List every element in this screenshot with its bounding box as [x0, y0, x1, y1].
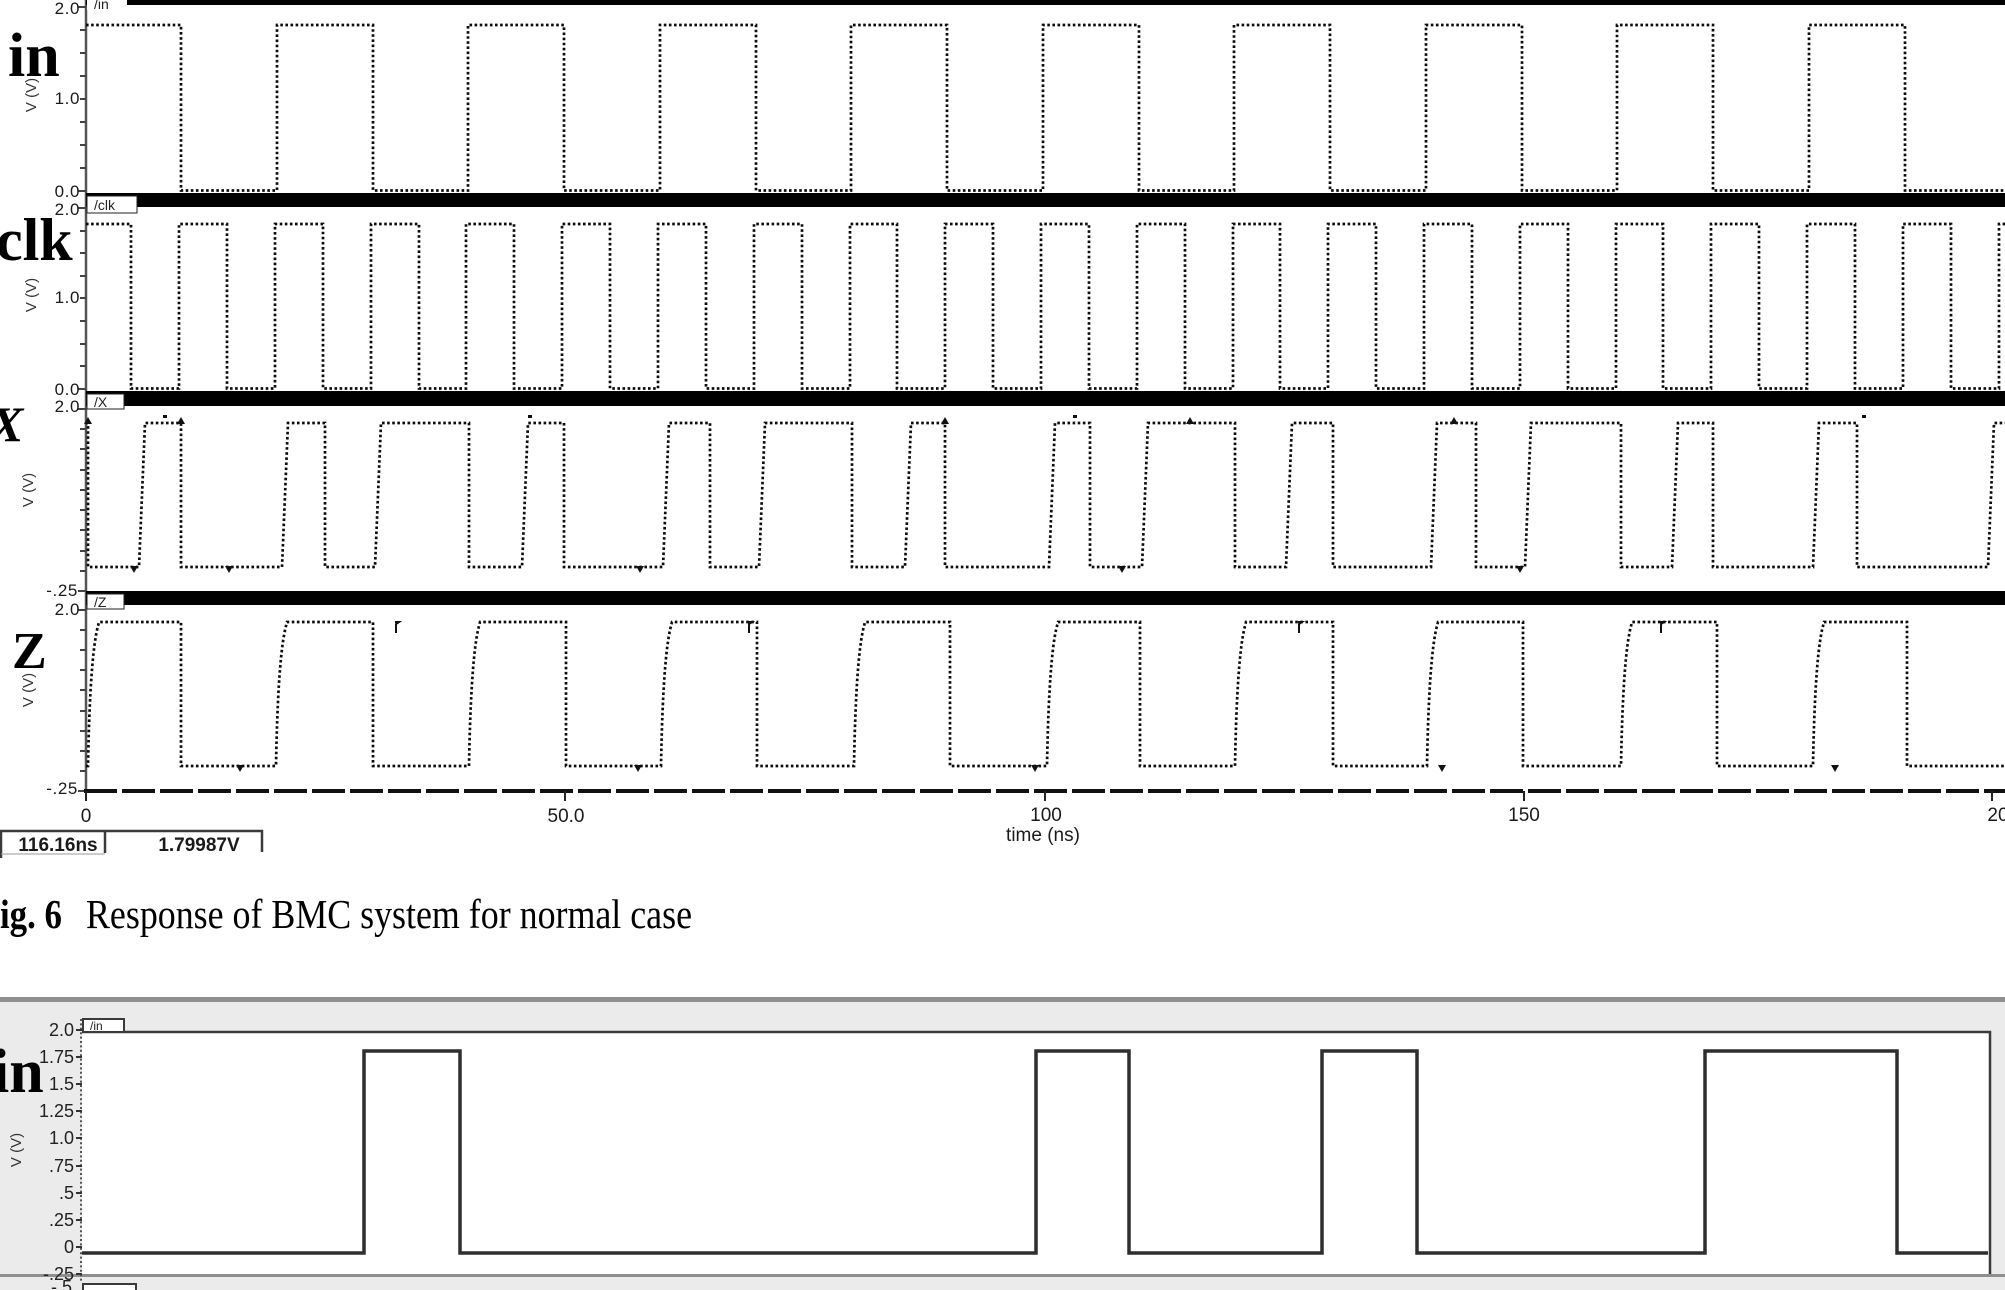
svg-text:150: 150: [1508, 805, 1540, 826]
svg-text:/Z: /Z: [94, 594, 107, 610]
svg-text:1.79987V: 1.79987V: [158, 835, 240, 856]
svg-text:/clk: /clk: [94, 197, 116, 213]
svg-text:X: X: [0, 396, 25, 452]
svg-text:clk: clk: [0, 207, 73, 273]
svg-text:V (V): V (V): [8, 1133, 25, 1167]
svg-text:/in: /in: [94, 0, 109, 12]
svg-text:50.0: 50.0: [548, 806, 585, 827]
svg-text:-.25: -.25: [46, 779, 78, 798]
svg-text:1.0: 1.0: [55, 288, 80, 307]
svg-text:1.75: 1.75: [39, 1047, 74, 1067]
svg-text:2.0: 2.0: [55, 0, 80, 18]
svg-text:1.0: 1.0: [49, 1128, 74, 1148]
svg-text:V (V): V (V): [20, 673, 37, 707]
svg-text:1.5: 1.5: [49, 1074, 74, 1094]
svg-text:ig. 6Response of BMC system fo: ig. 6Response of BMC system for normal c…: [0, 891, 692, 937]
svg-text:2.0: 2.0: [55, 397, 80, 416]
svg-text:/X: /X: [94, 394, 108, 410]
svg-text:2.0: 2.0: [55, 600, 80, 619]
svg-text:-.5: -.5: [51, 1277, 72, 1290]
svg-text:0: 0: [64, 1237, 74, 1257]
svg-text:in: in: [0, 1038, 44, 1106]
svg-text:0: 0: [81, 806, 92, 827]
svg-text:0.0: 0.0: [55, 182, 80, 201]
svg-text:100: 100: [1030, 805, 1062, 826]
svg-text:2.0: 2.0: [49, 1020, 74, 1040]
svg-text:V (V): V (V): [20, 473, 37, 507]
svg-text:.5: .5: [59, 1183, 74, 1203]
svg-text:116.16ns: 116.16ns: [18, 835, 97, 856]
svg-text:.25: .25: [49, 1210, 74, 1230]
svg-text:V (V): V (V): [23, 78, 40, 112]
svg-text:Z: Z: [12, 623, 47, 680]
svg-text:.75: .75: [49, 1156, 74, 1176]
svg-text:time (ns): time (ns): [1006, 825, 1080, 846]
svg-text:/in: /in: [90, 1019, 103, 1033]
svg-text:20: 20: [1987, 805, 2005, 826]
svg-text:V (V): V (V): [23, 278, 40, 312]
svg-text:1.25: 1.25: [39, 1101, 74, 1121]
svg-text:1.0: 1.0: [55, 89, 80, 108]
svg-text:-.25: -.25: [46, 581, 78, 600]
